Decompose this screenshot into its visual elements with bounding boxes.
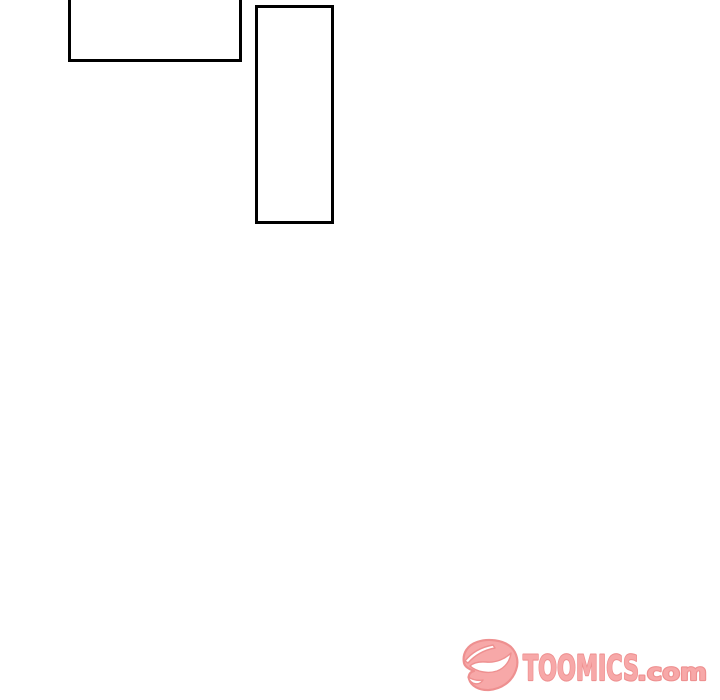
toomics-mask-icon [464,640,518,690]
comic-panel-outline-vertical [255,5,334,224]
watermark-suffix-text: .com [637,660,707,686]
watermark-brand-text: TOOMICS [523,649,639,689]
toomics-watermark-logo: TOOMICS .com [460,636,710,694]
comic-panel-outline-top [68,0,242,62]
comic-page: TOOMICS .com [0,0,720,700]
